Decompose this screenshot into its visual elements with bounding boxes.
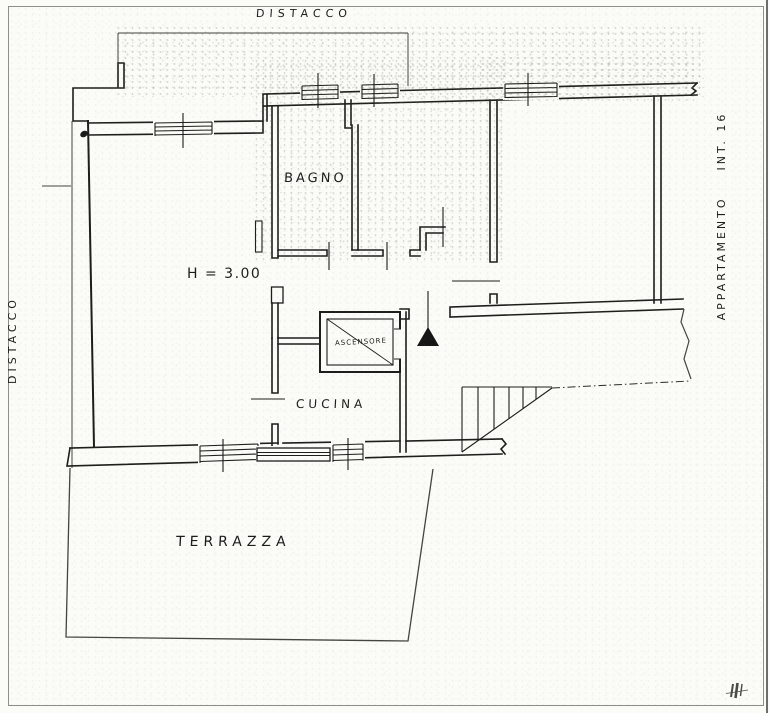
- duct-shaft: [256, 221, 263, 252]
- label-bagno: BAGNO: [284, 171, 347, 186]
- staircase: [462, 381, 690, 452]
- label-apartment-int-16: APPARTAMENTO INT. 16: [715, 111, 731, 321]
- label-distacco-left: DISTACCO: [6, 285, 22, 395]
- window-living-north: [155, 113, 212, 148]
- walls-middle-room: [352, 207, 445, 270]
- terrace-door: [257, 448, 330, 461]
- label-distacco-top: DISTACCO: [256, 7, 353, 20]
- wall-top-left-step: [73, 63, 124, 121]
- label-terrazza: TERRAZZA: [176, 534, 291, 550]
- page-border: [9, 7, 764, 706]
- wall-feature-door-jamb: [272, 287, 284, 303]
- floorplan-drawing: [0, 0, 770, 713]
- wall-kitchen-west: [251, 338, 285, 446]
- wall-south: [67, 438, 506, 472]
- wall-north-living: [88, 113, 263, 148]
- entrance-arrow: [417, 327, 439, 346]
- label-ceiling-height: H = 3.00: [187, 266, 261, 282]
- wall-entrance-landing: [400, 291, 691, 379]
- walls-right-room: [452, 96, 661, 303]
- wall-north-main: [263, 73, 697, 121]
- floorplan-page: DISTACCO DISTACCO APPARTAMENTO INT. 16 B…: [0, 0, 770, 713]
- terrace-outline: [66, 468, 433, 641]
- scan-edge: [766, 0, 768, 713]
- corner-scribble-mark: [726, 683, 748, 698]
- wall-west: [88, 121, 94, 447]
- wall-stub-elevator: [278, 338, 320, 344]
- stair-cut-line: [462, 388, 552, 452]
- wall-east-living: [256, 106, 284, 338]
- label-cucina: CUCINA: [296, 397, 367, 411]
- landing-dash-line: [552, 381, 690, 388]
